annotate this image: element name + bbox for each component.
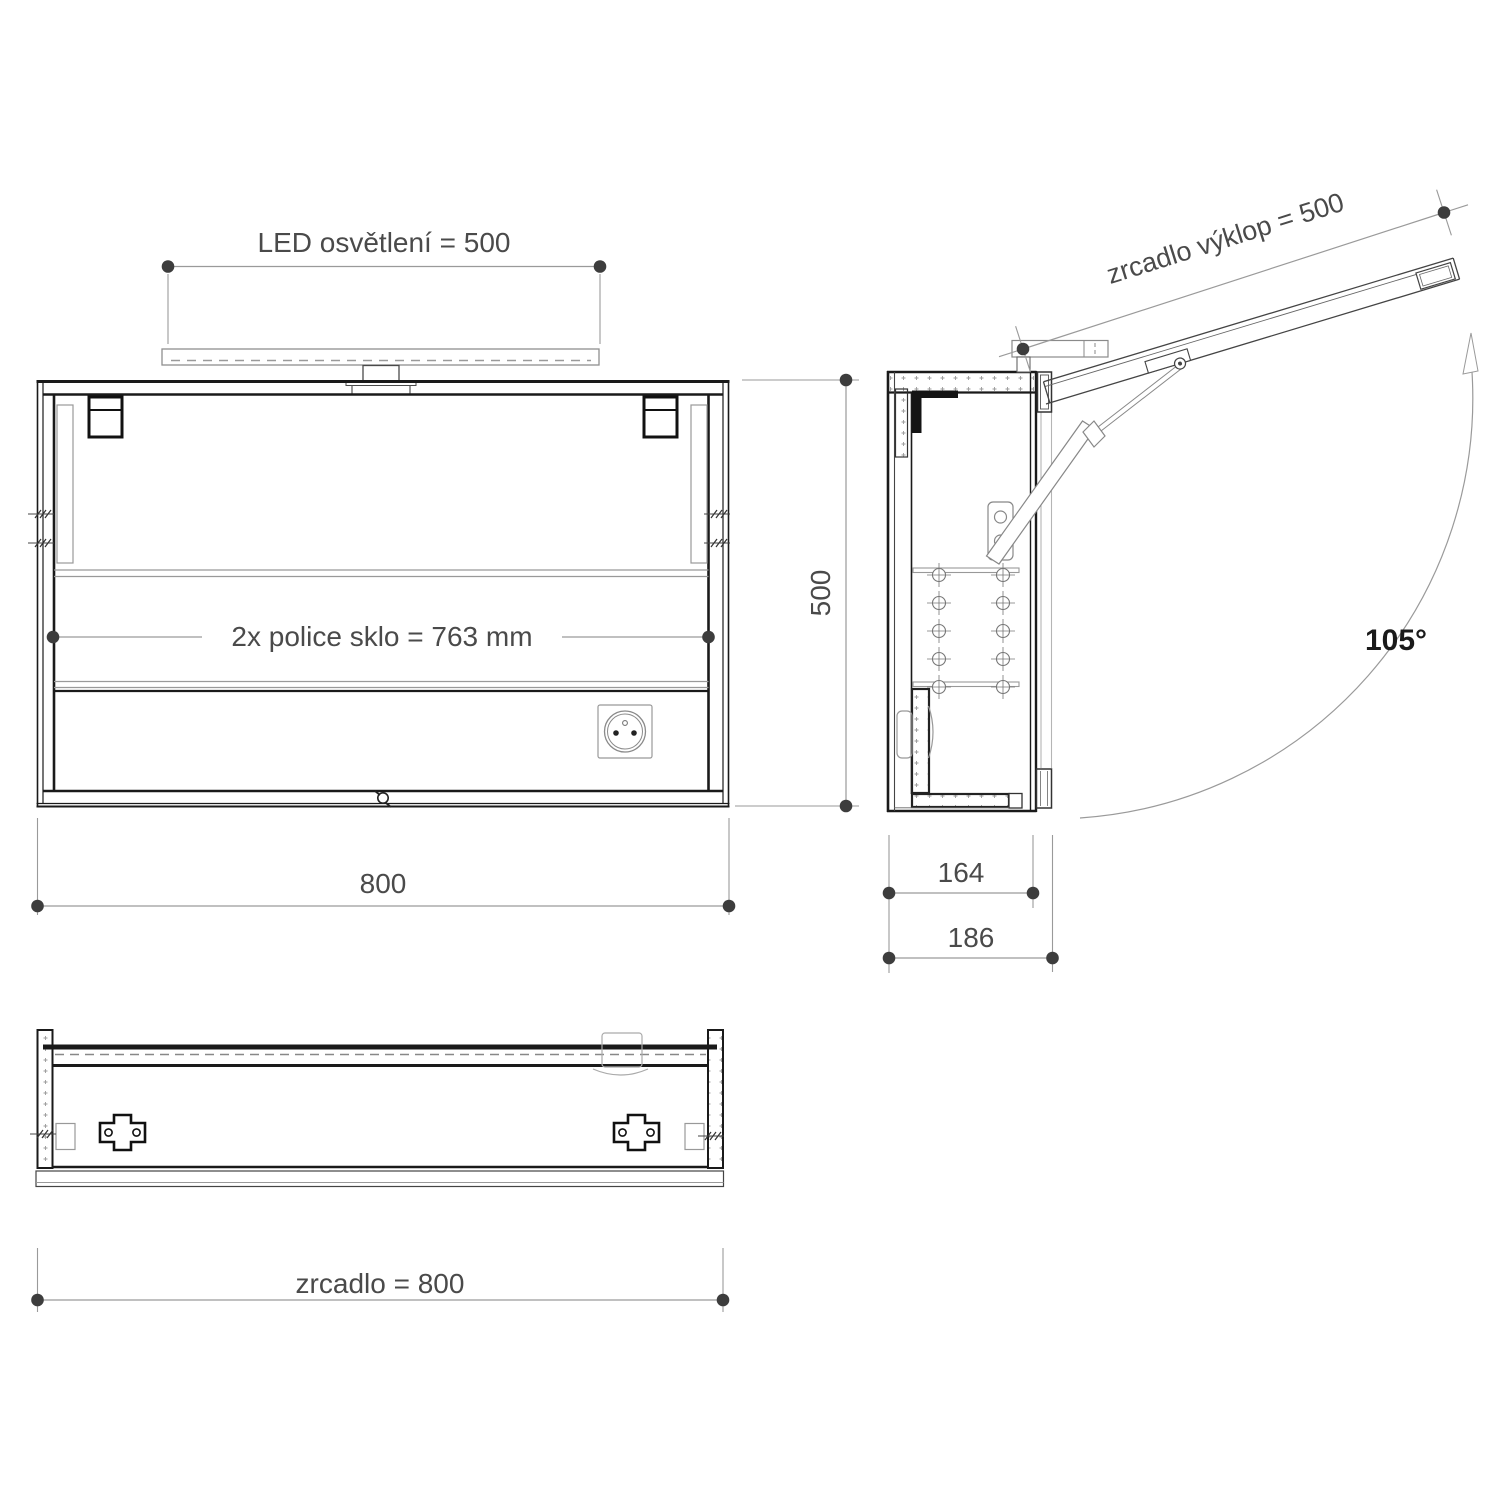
bottom-rail: [912, 794, 1009, 807]
screw-mark-icon: [28, 510, 54, 518]
bottom-step: [1009, 794, 1022, 809]
screw-mark-icon: [28, 539, 54, 547]
swing-arc: [1080, 333, 1478, 818]
inner-depth-label: 164: [938, 857, 985, 888]
shelf-pin-holes: [927, 563, 1015, 699]
hinge-plate-left: [100, 1115, 145, 1150]
corner-bracket-side: [912, 391, 958, 434]
wall-rail-bottom: [912, 689, 929, 793]
led-dimension-label: LED osvětlení = 500: [258, 227, 511, 258]
height-dimension-label: 500: [805, 570, 836, 617]
front-led-dimension: LED osvětlení = 500: [162, 227, 607, 344]
side-view: zrcadlo výklop = 500 105° 164 186: [883, 187, 1478, 973]
flap-dimension-label: zrcadlo výklop = 500: [1103, 187, 1347, 290]
socket-symbol: [598, 705, 652, 758]
width-dimension-label: 800: [360, 868, 407, 899]
mirror-width-dimension: zrcadlo = 800: [31, 1248, 729, 1312]
outer-depth-label: 186: [948, 922, 995, 953]
door-hinge-edge-top: [1038, 372, 1052, 412]
shelf-dimension-label: 2x police sklo = 763 mm: [231, 621, 532, 652]
hanger-bracket: [897, 711, 912, 758]
corner-bracket-left: [89, 397, 122, 437]
front-width-dimension: 800: [31, 818, 735, 915]
led-driver-strip-right: [691, 405, 707, 563]
cabinet-technical-drawing: LED osvětlení = 500: [0, 0, 1500, 1500]
mirror-width-label: zrcadlo = 800: [296, 1268, 465, 1299]
bottom-view: zrcadlo = 800: [30, 1030, 729, 1312]
wall-bracket-left: [56, 1124, 75, 1150]
door-end-cap: [1416, 263, 1455, 290]
front-shelf-dimension: 2x police sklo = 763 mm: [47, 621, 715, 652]
drawing-canvas: LED osvětlení = 500: [0, 0, 1500, 1500]
corner-bracket-right: [644, 397, 677, 437]
depth-dimensions: 164 186: [883, 835, 1059, 973]
clip-symbol: [375, 791, 391, 807]
bottom-wall-left: [38, 1030, 53, 1168]
wall-rail-top: [896, 389, 908, 457]
open-mirror-door: [1040, 258, 1462, 409]
door-corner-bottom: [1037, 769, 1052, 808]
hinge-plate-right: [614, 1115, 659, 1150]
led-driver-strip-left: [57, 405, 73, 563]
side-carcass: [887, 371, 1037, 812]
front-height-dimension: 500: [735, 374, 859, 813]
gas-strut: [987, 365, 1182, 564]
led-light-bar: [162, 349, 599, 396]
opening-angle-label: 105°: [1365, 624, 1427, 657]
back-panel-band: [36, 1171, 724, 1187]
bottom-wall-right: [708, 1030, 723, 1168]
wall-bracket-right: [685, 1124, 704, 1150]
front-view: LED osvětlení = 500: [28, 227, 859, 915]
